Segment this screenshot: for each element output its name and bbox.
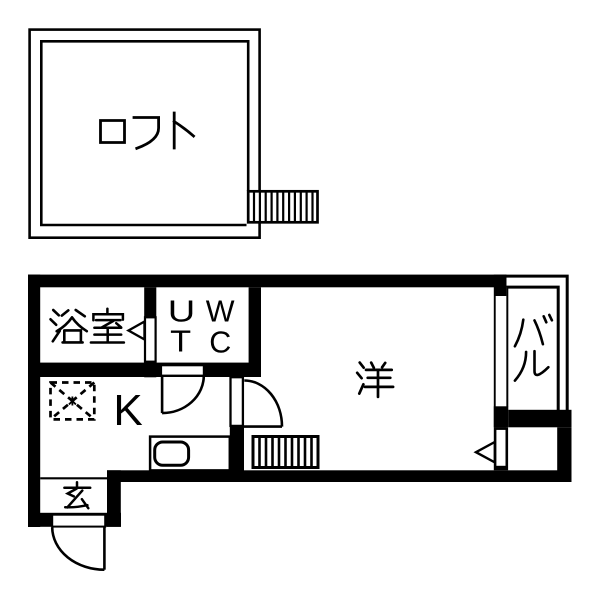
svg-text:T: T [170,325,191,359]
svg-text:C: C [209,325,231,359]
svg-text:U: U [168,295,196,329]
svg-text:W: W [206,295,235,329]
svg-text:K: K [113,386,142,435]
